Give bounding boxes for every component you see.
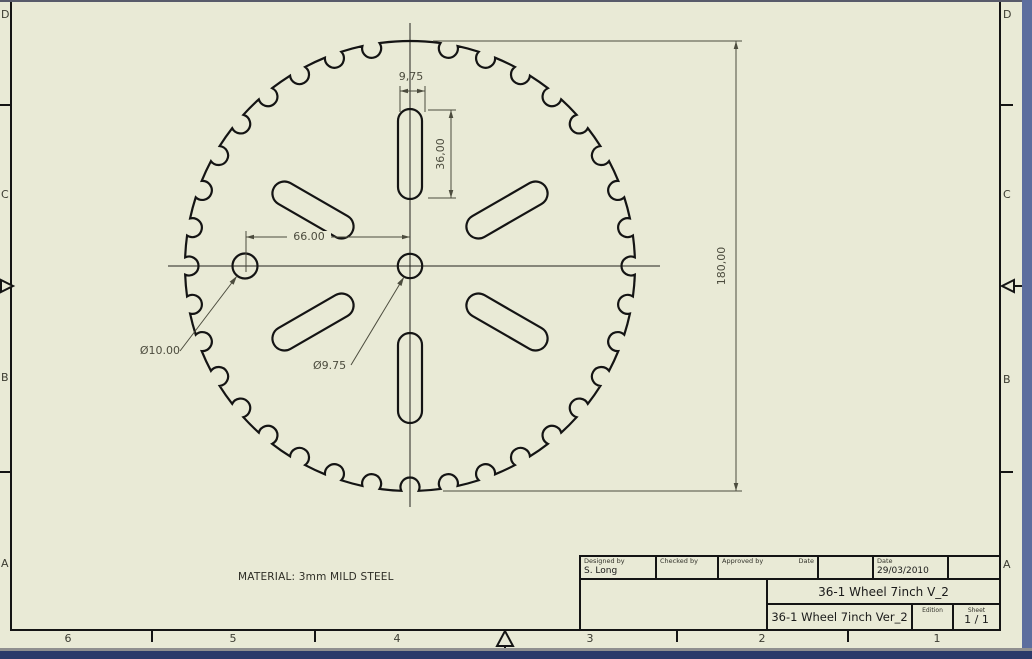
window-edge-right	[1022, 0, 1032, 659]
dim-offset-hole-diameter: Ø10.00	[130, 345, 180, 357]
material-note: MATERIAL: 3mm MILD STEEL	[238, 571, 394, 583]
lightening-slot	[462, 177, 552, 243]
approved-date-label: Date	[798, 558, 814, 577]
zone-number-5: 5	[226, 632, 240, 645]
zone-number-4: 4	[390, 632, 404, 645]
zone-number-6: 6	[61, 632, 75, 645]
leader-center-hole	[351, 277, 404, 365]
zone-number-2: 2	[755, 632, 769, 645]
dim-slot-length: 36,00	[435, 131, 447, 177]
dim-slot-width: 9,75	[391, 71, 431, 83]
titleblock-cell-empty-large	[581, 580, 768, 629]
titleblock-right-column: 36-1 Wheel 7inch V_2 36-1 Wheel 7inch Ve…	[768, 580, 999, 629]
centerlines	[168, 23, 660, 507]
title-block-bottom-row: 36-1 Wheel 7inch Ver_2 Edition Sheet 1 /…	[768, 605, 999, 629]
title-block-row-1: Designed by S. Long Checked by Approved …	[581, 557, 999, 580]
zone-letter-right-a: A	[1003, 558, 1011, 571]
window-edge-bottom	[0, 651, 1032, 659]
centering-mark-bottom-arrow-icon	[497, 631, 513, 646]
zone-letter-left-b: B	[1, 371, 9, 384]
leader-offset-hole	[180, 276, 237, 351]
titleblock-cell-sheet: Sheet 1 / 1	[954, 605, 999, 629]
edition-label: Edition	[913, 607, 952, 614]
zone-number-1: 1	[930, 632, 944, 645]
zone-letter-right-b: B	[1003, 373, 1011, 386]
zone-number-3: 3	[583, 632, 597, 645]
sheet-frame	[0, 0, 1013, 642]
zone-letter-right-d: D	[1003, 8, 1011, 21]
checked-by-label: Checked by	[660, 558, 714, 565]
titleblock-cell-empty-2	[949, 557, 999, 578]
title-block: Designed by S. Long Checked by Approved …	[579, 555, 1001, 631]
zone-letter-left-c: C	[1, 188, 9, 201]
lightening-slot	[268, 289, 358, 355]
date-label: Date	[877, 558, 944, 565]
zone-letter-left-a: A	[1, 557, 9, 570]
designed-by-value: S. Long	[584, 566, 652, 576]
lightening-slot	[462, 289, 552, 355]
approved-by-label: Approved by	[722, 558, 763, 577]
dim-hole-offset: 66.00	[287, 231, 331, 243]
titleblock-cell-designed-by: Designed by S. Long	[581, 557, 657, 578]
titleblock-cell-date: Date 29/03/2010	[874, 557, 949, 578]
drawing-title: 36-1 Wheel 7inch V_2	[768, 580, 999, 605]
titleblock-cell-checked-by: Checked by	[657, 557, 719, 578]
zone-letter-right-c: C	[1003, 188, 1011, 201]
drawing-sheet: { "sheet": { "paper_color": "#e9ead6", "…	[0, 0, 1032, 659]
titleblock-cell-edition: Edition	[913, 605, 954, 629]
designed-by-label: Designed by	[584, 558, 652, 565]
window-edge-top	[0, 0, 1032, 2]
dim-outer-diameter: 180,00	[716, 240, 728, 292]
zone-letter-left-d: D	[1, 8, 9, 21]
drawing-subtitle: 36-1 Wheel 7inch Ver_2	[768, 605, 913, 629]
date-value: 29/03/2010	[877, 566, 944, 576]
titleblock-cell-approved-by: Approved by Date	[719, 557, 819, 578]
dim-center-hole-diameter: Ø9.75	[313, 360, 357, 372]
centering-mark-right-arrow-icon	[1002, 280, 1014, 292]
titleblock-cell-empty-1	[819, 557, 874, 578]
title-block-row-2-3: 36-1 Wheel 7inch V_2 36-1 Wheel 7inch Ve…	[581, 580, 999, 629]
sheet-value: 1 / 1	[954, 614, 999, 626]
